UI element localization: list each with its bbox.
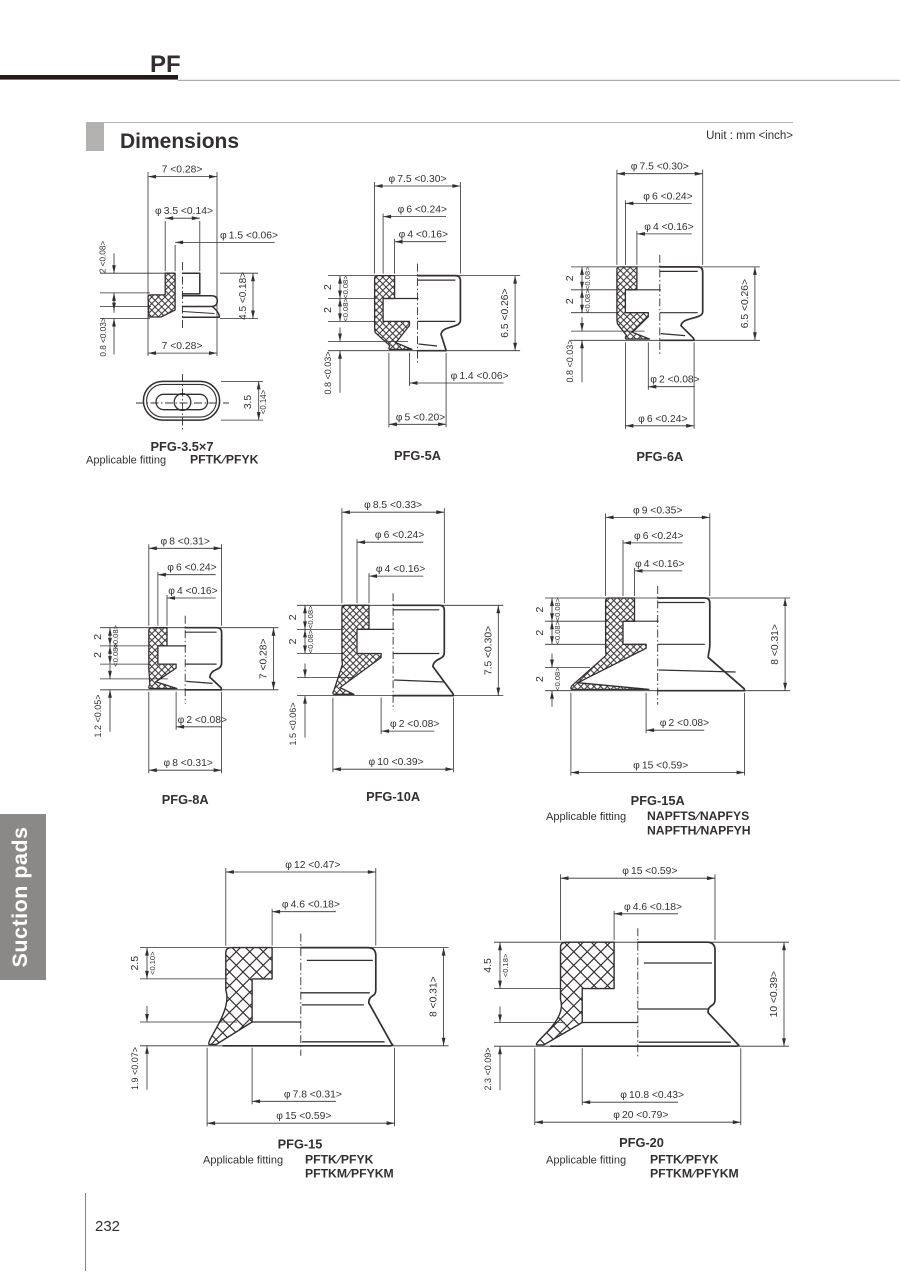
svg-text:2.3 <0.09>: 2.3 <0.09> (483, 1047, 493, 1090)
svg-text:<0.08>: <0.08> (341, 298, 350, 322)
svg-text:φ 5 <0.20>: φ 5 <0.20> (396, 412, 445, 423)
svg-text:2: 2 (287, 614, 299, 620)
svg-text:Applicable fitting: Applicable fitting (203, 1154, 283, 1166)
svg-text:<0.08>: <0.08> (553, 597, 562, 621)
svg-text:φ 15 <0.59>: φ 15 <0.59> (633, 761, 688, 772)
svg-text:φ 8 <0.31>: φ 8 <0.31> (163, 758, 212, 769)
svg-text:φ 7.5 <0.30>: φ 7.5 <0.30> (631, 162, 689, 173)
svg-text:φ 9 <0.35>: φ 9 <0.35> (633, 505, 682, 516)
svg-text:φ 6 <0.24>: φ 6 <0.24> (398, 205, 447, 216)
svg-text:7 <0.28>: 7 <0.28> (162, 341, 203, 352)
svg-text:<0.10>: <0.10> (148, 951, 157, 975)
svg-text:4.5 <0.18>: 4.5 <0.18> (238, 272, 249, 320)
svg-text:PFG-15: PFG-15 (278, 1136, 323, 1151)
svg-text:φ 8.5 <0.33>: φ 8.5 <0.33> (364, 500, 422, 511)
svg-text:2: 2 (534, 676, 546, 682)
svg-text:φ 4.6 <0.18>: φ 4.6 <0.18> (282, 900, 340, 911)
svg-text:Applicable fitting: Applicable fitting (546, 1154, 626, 1166)
svg-text:6.5 <0.26>: 6.5 <0.26> (500, 288, 511, 337)
svg-text:φ 4 <0.16>: φ 4 <0.16> (399, 230, 448, 241)
svg-text:<0.14>: <0.14> (259, 389, 268, 414)
svg-text:232: 232 (95, 1218, 120, 1235)
svg-text:0.8 <0.03>: 0.8 <0.03> (99, 317, 108, 356)
svg-text:φ 2 <0.08>: φ 2 <0.08> (178, 715, 227, 726)
svg-text:φ 4 <0.16>: φ 4 <0.16> (376, 564, 425, 575)
svg-text:φ 1.5 <0.06>: φ 1.5 <0.06> (220, 230, 278, 241)
svg-text:φ 8 <0.31>: φ 8 <0.31> (160, 536, 209, 547)
svg-text:PFG-8A: PFG-8A (162, 792, 209, 807)
svg-text:2.5: 2.5 (129, 956, 141, 971)
svg-text:2: 2 (287, 638, 299, 644)
svg-text:φ 4 <0.16>: φ 4 <0.16> (168, 586, 217, 597)
svg-text:8 <0.31>: 8 <0.31> (770, 624, 781, 665)
svg-text:PFG-6A: PFG-6A (636, 449, 683, 464)
svg-text:<0.08>: <0.08> (553, 620, 562, 644)
svg-text:6.5 <0.26>: 6.5 <0.26> (740, 279, 751, 328)
svg-text:2: 2 (564, 275, 576, 281)
svg-text:8 <0.31>: 8 <0.31> (429, 976, 440, 1017)
svg-text:7 <0.28>: 7 <0.28> (259, 638, 270, 679)
svg-text:φ 2 <0.08>: φ 2 <0.08> (390, 719, 439, 730)
svg-text:<0.08>: <0.08> (583, 266, 592, 290)
svg-text:φ 4 <0.16>: φ 4 <0.16> (644, 222, 693, 233)
svg-text:0.8 <0.03>: 0.8 <0.03> (565, 339, 575, 382)
svg-text:φ 6 <0.24>: φ 6 <0.24> (375, 530, 424, 541)
svg-text:<0.18>: <0.18> (501, 953, 510, 977)
svg-text:PF: PF (150, 51, 181, 78)
svg-text:1.9 <0.07>: 1.9 <0.07> (130, 1047, 140, 1090)
svg-text:7 <0.28>: 7 <0.28> (162, 165, 203, 176)
svg-text:PFTKM ∕ PFYKM: PFTKM ∕ PFYKM (305, 1166, 394, 1180)
svg-text:φ 10 <0.39>: φ 10 <0.39> (369, 757, 424, 768)
svg-text:<0.08>: <0.08> (306, 629, 315, 653)
svg-text:φ 3.5 <0.14>: φ 3.5 <0.14> (155, 206, 213, 217)
svg-text:0.8 <0.03>: 0.8 <0.03> (323, 351, 333, 394)
svg-text:2: 2 (92, 634, 104, 640)
svg-text:Dimensions: Dimensions (120, 130, 239, 153)
svg-text:3.5: 3.5 (243, 395, 254, 410)
svg-text:φ 4 <0.16>: φ 4 <0.16> (635, 559, 684, 570)
svg-text:1.5 <0.06>: 1.5 <0.06> (288, 702, 298, 745)
svg-text:2: 2 (322, 284, 334, 290)
svg-text:PFG-15A: PFG-15A (631, 793, 685, 808)
svg-text:φ 4.6 <0.18>: φ 4.6 <0.18> (624, 902, 682, 913)
svg-text:PFG-5A: PFG-5A (394, 448, 441, 463)
svg-text:NAPFTH ∕ NAPFYH: NAPFTH ∕ NAPFYH (647, 824, 751, 838)
svg-text:φ 2 <0.08>: φ 2 <0.08> (660, 718, 709, 729)
svg-text:Unit : mm <inch>: Unit : mm <inch> (706, 130, 793, 142)
svg-text:φ 10.8 <0.43>: φ 10.8 <0.43> (620, 1090, 684, 1101)
svg-text:4.5: 4.5 (482, 958, 494, 973)
svg-text:φ 2 <0.08>: φ 2 <0.08> (650, 375, 699, 386)
svg-text:<0.08>: <0.08> (111, 643, 120, 667)
svg-text:Suction pads: Suction pads (8, 827, 32, 968)
svg-text:PFTK ∕ PFYK: PFTK ∕ PFYK (305, 1152, 374, 1166)
svg-text:φ 6 <0.24>: φ 6 <0.24> (638, 414, 687, 425)
svg-text:PFTK ∕ PFYK: PFTK ∕ PFYK (650, 1152, 719, 1166)
svg-text:Applicable fitting: Applicable fitting (86, 455, 166, 467)
svg-text:Applicable fitting: Applicable fitting (546, 811, 626, 823)
svg-text:PFG-10A: PFG-10A (366, 789, 420, 804)
svg-text:φ 20 <0.79>: φ 20 <0.79> (613, 1110, 668, 1121)
svg-text:2: 2 (534, 630, 546, 636)
svg-text:PFTKM ∕ PFYKM: PFTKM ∕ PFYKM (650, 1166, 739, 1180)
svg-text:2 <0.08>: 2 <0.08> (99, 241, 108, 274)
svg-text:PFTK ∕ PFYK: PFTK ∕ PFYK (190, 453, 259, 467)
svg-text:<0.08>: <0.08> (306, 605, 315, 629)
svg-text:φ 7.5 <0.30>: φ 7.5 <0.30> (389, 174, 447, 185)
svg-text:φ 6 <0.24>: φ 6 <0.24> (634, 531, 683, 542)
svg-text:1.2 <0.05>: 1.2 <0.05> (93, 694, 103, 737)
svg-text:7.5 <0.30>: 7.5 <0.30> (483, 626, 494, 675)
svg-text:φ 7.8 <0.31>: φ 7.8 <0.31> (284, 1089, 342, 1100)
svg-text:<0.08>: <0.08> (553, 667, 562, 691)
svg-text:2: 2 (92, 652, 104, 658)
svg-text:φ 12 <0.47>: φ 12 <0.47> (285, 860, 340, 871)
svg-text:φ 15 <0.59>: φ 15 <0.59> (276, 1111, 331, 1122)
svg-text:PFG-20: PFG-20 (619, 1135, 664, 1150)
svg-text:2: 2 (322, 307, 334, 313)
svg-text:10 <0.39>: 10 <0.39> (769, 971, 780, 1017)
svg-text:φ 6 <0.24>: φ 6 <0.24> (643, 191, 692, 202)
svg-text:<0.08>: <0.08> (341, 275, 350, 299)
svg-text:NAPFTS ∕ NAPFYS: NAPFTS ∕ NAPFYS (647, 809, 749, 823)
svg-text:2: 2 (534, 607, 546, 613)
svg-text:<0.08>: <0.08> (583, 289, 592, 313)
svg-text:φ 1.4 <0.06>: φ 1.4 <0.06> (451, 371, 509, 382)
svg-text:φ 6 <0.24>: φ 6 <0.24> (167, 563, 216, 574)
svg-text:2: 2 (564, 298, 576, 304)
svg-text:φ 15 <0.59>: φ 15 <0.59> (622, 866, 677, 877)
